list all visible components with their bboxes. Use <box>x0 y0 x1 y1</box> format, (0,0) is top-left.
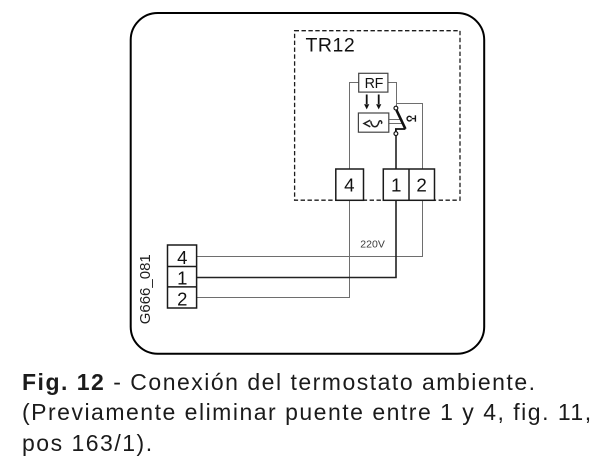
svg-text:4: 4 <box>344 175 354 196</box>
svg-text:220V: 220V <box>360 239 385 251</box>
svg-text:1: 1 <box>177 268 187 289</box>
svg-text:4: 4 <box>177 247 187 268</box>
svg-text:2: 2 <box>416 175 426 196</box>
svg-text:G666_081: G666_081 <box>137 254 154 324</box>
svg-text:TR12: TR12 <box>306 35 356 57</box>
svg-text:2: 2 <box>177 288 187 309</box>
svg-text:1: 1 <box>391 175 401 196</box>
svg-text:RF: RF <box>365 76 384 92</box>
